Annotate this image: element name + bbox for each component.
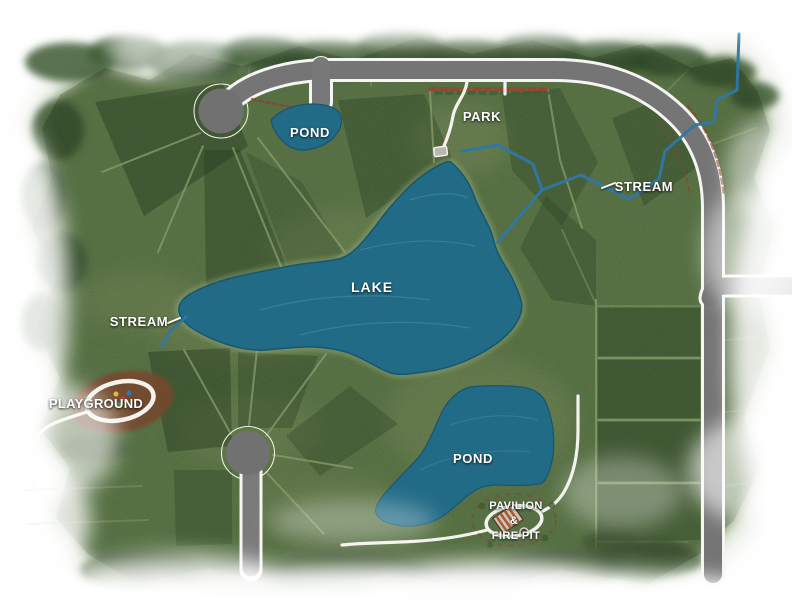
- label-stream-left: STREAM: [110, 314, 169, 329]
- label-pond-bottom: POND: [453, 451, 493, 466]
- bush: [487, 542, 493, 548]
- map-canvas: POND PARK STREAM LAKE STREAM PLAYGROUND …: [0, 0, 792, 612]
- bush: [542, 535, 549, 542]
- haze-patch: [80, 552, 280, 604]
- label-park: PARK: [463, 109, 501, 124]
- haze-patch: [110, 26, 230, 78]
- label-pavilion-line1: PAVILION: [489, 500, 543, 512]
- label-pond-top: POND: [290, 125, 330, 140]
- site-plan-map: POND PARK STREAM LAKE STREAM PLAYGROUND …: [0, 0, 792, 612]
- label-pavilion-line2: &: [510, 515, 518, 527]
- play-equipment-dot: [127, 391, 132, 396]
- label-pavilion-line3: FIRE PIT: [492, 530, 540, 542]
- label-stream-right: STREAM: [615, 179, 674, 194]
- bush: [479, 503, 486, 510]
- dock: [434, 146, 448, 157]
- haze-patch: [562, 456, 682, 528]
- cul-de-sac-south: [226, 431, 270, 475]
- haze-patch: [268, 500, 436, 544]
- bush: [549, 502, 555, 508]
- cul-de-sac-north: [199, 89, 244, 134]
- label-lake: LAKE: [351, 279, 393, 295]
- label-playground: PLAYGROUND: [49, 396, 143, 411]
